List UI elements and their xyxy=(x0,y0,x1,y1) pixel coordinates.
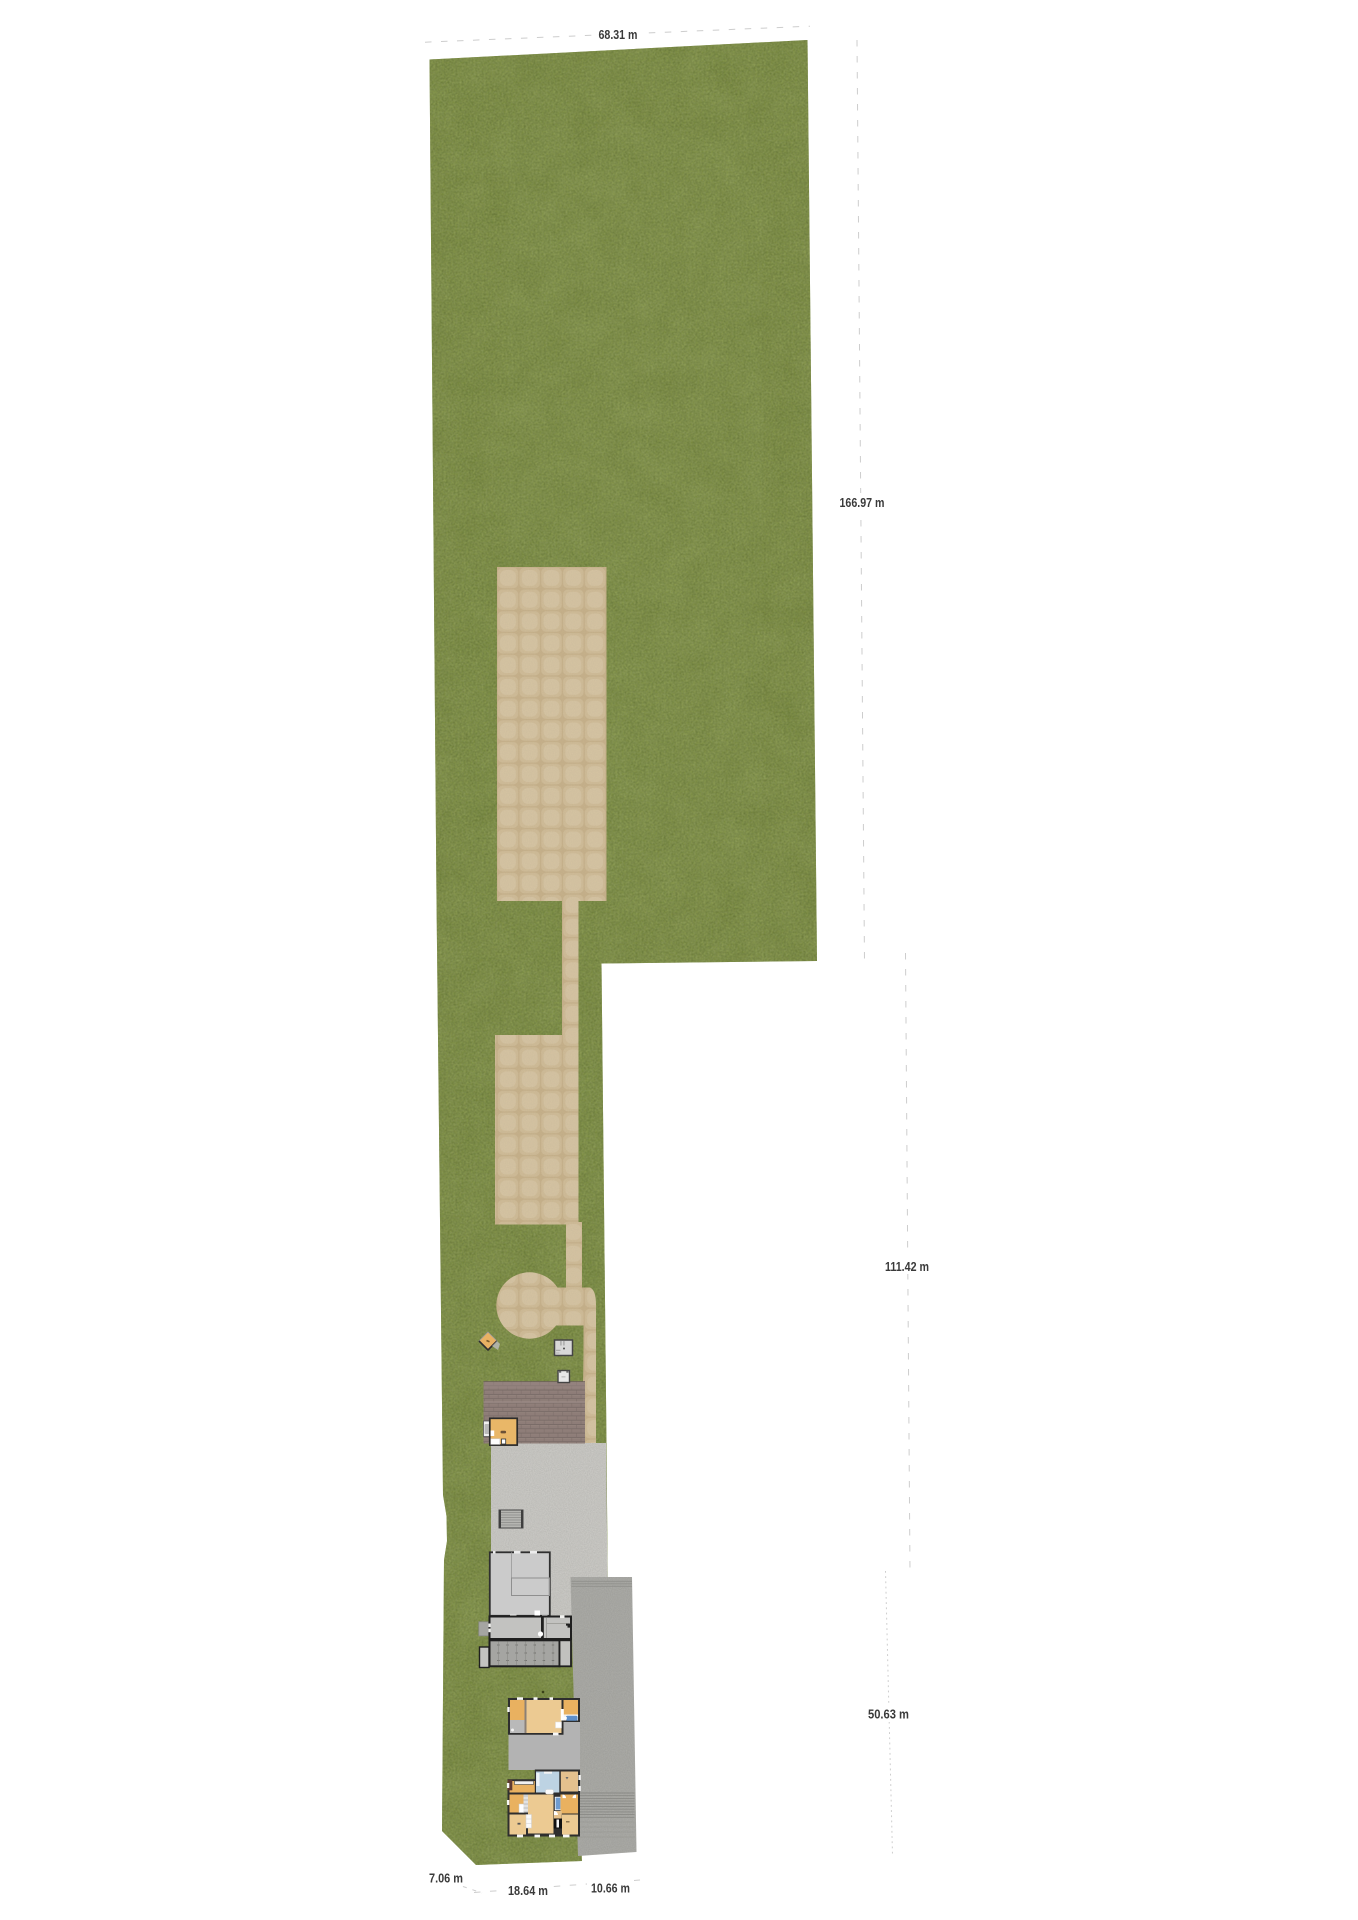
svg-text:68.31 m: 68.31 m xyxy=(599,28,638,42)
svg-text:166.97 m: 166.97 m xyxy=(840,496,885,510)
svg-text:7.06 m: 7.06 m xyxy=(429,1872,463,1886)
svg-text:111.42 m: 111.42 m xyxy=(885,1260,929,1274)
svg-text:10.66 m: 10.66 m xyxy=(591,1882,630,1896)
svg-text:18.64 m: 18.64 m xyxy=(508,1884,548,1898)
svg-text:50.63 m: 50.63 m xyxy=(868,1707,909,1721)
